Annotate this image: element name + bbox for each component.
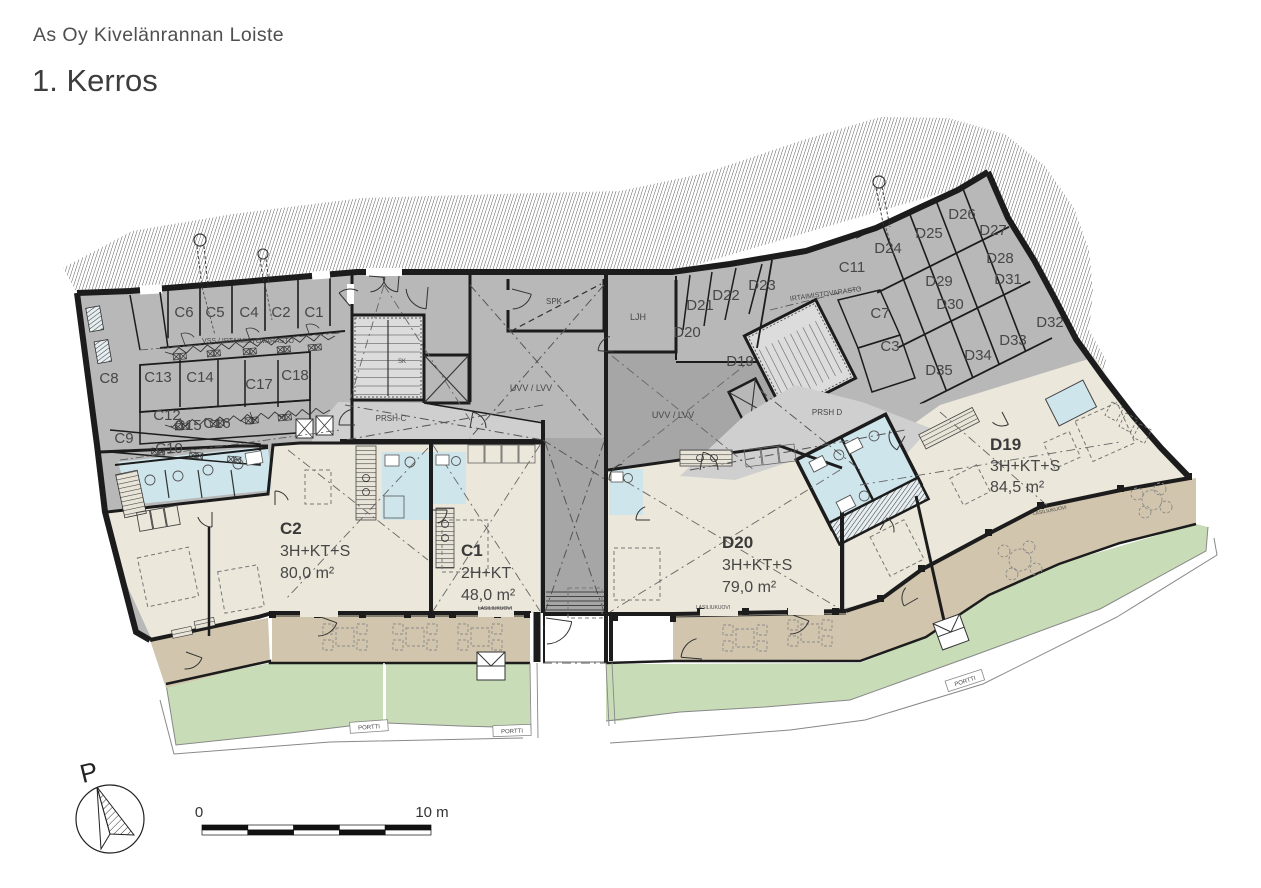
svg-text:SPK: SPK [546, 297, 563, 306]
svg-text:C13: C13 [144, 369, 172, 386]
svg-text:C5: C5 [205, 304, 224, 321]
svg-text:C1: C1 [304, 304, 323, 321]
svg-text:UVV / LVV: UVV / LVV [652, 410, 694, 420]
svg-text:80,0 m²: 80,0 m² [280, 565, 335, 582]
svg-text:48,0 m²: 48,0 m² [461, 587, 516, 604]
svg-text:3H+KT+S: 3H+KT+S [722, 557, 792, 574]
svg-text:PRSH-C: PRSH-C [376, 414, 407, 423]
svg-text:D35: D35 [925, 362, 953, 379]
svg-text:D19: D19 [726, 353, 754, 370]
svg-text:C11: C11 [839, 259, 865, 276]
svg-text:C18: C18 [281, 367, 309, 384]
svg-text:D34: D34 [964, 347, 992, 364]
svg-text:LASILIUKUOVI: LASILIUKUOVI [478, 606, 512, 612]
svg-text:C15: C15 [174, 417, 202, 434]
svg-text:C2: C2 [271, 304, 290, 321]
svg-text:3H+KT+S: 3H+KT+S [990, 458, 1060, 475]
svg-text:LJH: LJH [630, 312, 646, 322]
svg-text:D24: D24 [874, 240, 902, 257]
svg-text:C3: C3 [880, 338, 899, 355]
svg-text:C1: C1 [461, 541, 483, 560]
svg-text:C14: C14 [186, 369, 214, 386]
svg-text:79,0 m²: 79,0 m² [722, 579, 777, 596]
svg-text:C17: C17 [245, 376, 273, 393]
svg-text:1. Kerros: 1. Kerros [32, 63, 158, 98]
svg-text:D32: D32 [1036, 314, 1064, 331]
svg-text:C4: C4 [239, 304, 258, 321]
svg-text:2H+KT: 2H+KT [461, 565, 511, 582]
svg-text:PORTTI: PORTTI [501, 729, 523, 736]
svg-text:LASILIUKUOVI: LASILIUKUOVI [696, 605, 730, 611]
svg-text:D20: D20 [673, 324, 701, 341]
svg-text:D20: D20 [722, 533, 753, 552]
svg-text:10 m: 10 m [415, 804, 448, 821]
svg-text:D28: D28 [986, 250, 1014, 267]
svg-text:D26: D26 [948, 206, 976, 223]
svg-text:D27: D27 [979, 222, 1007, 239]
svg-text:C16: C16 [203, 415, 231, 432]
svg-text:VSS / IRTAIMISTOVARASTO: VSS / IRTAIMISTOVARASTO [202, 338, 294, 345]
svg-text:3H+KT+S: 3H+KT+S [280, 543, 350, 560]
svg-text:PRSH D: PRSH D [812, 408, 842, 417]
svg-text:C9: C9 [114, 430, 133, 447]
svg-text:C7: C7 [870, 305, 889, 322]
svg-text:D25: D25 [915, 225, 943, 242]
svg-text:As Oy Kivelänrannan Loiste: As Oy Kivelänrannan Loiste [33, 24, 284, 46]
svg-text:SK: SK [398, 359, 406, 365]
svg-text:C2: C2 [280, 519, 302, 538]
svg-text:84,5 m²: 84,5 m² [990, 479, 1045, 496]
svg-text:D22: D22 [712, 287, 740, 304]
svg-text:0: 0 [195, 804, 203, 821]
svg-text:D31: D31 [994, 271, 1022, 288]
svg-text:D19: D19 [990, 435, 1021, 454]
svg-text:UVV / LVV: UVV / LVV [510, 383, 552, 393]
svg-text:C6: C6 [174, 304, 193, 321]
svg-text:D29: D29 [925, 273, 953, 290]
svg-text:D23: D23 [748, 277, 776, 294]
svg-text:C8: C8 [99, 370, 118, 387]
svg-text:D30: D30 [936, 296, 964, 313]
svg-text:C10: C10 [155, 440, 183, 457]
svg-text:D21: D21 [686, 297, 714, 314]
svg-text:D33: D33 [999, 332, 1027, 349]
